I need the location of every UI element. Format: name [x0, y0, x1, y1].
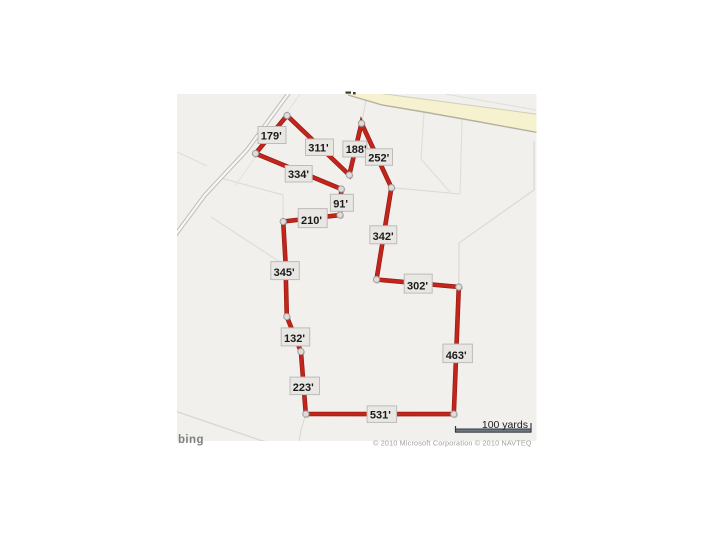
svg-text:223': 223'	[293, 382, 314, 394]
svg-text:334': 334'	[288, 169, 309, 181]
svg-text:463': 463'	[446, 350, 467, 362]
svg-text:179': 179'	[261, 131, 282, 143]
svg-text:91': 91'	[333, 199, 348, 211]
svg-text:342': 342'	[373, 231, 394, 243]
svg-text:531': 531'	[370, 410, 391, 422]
svg-text:132': 132'	[284, 333, 305, 345]
svg-text:302': 302'	[407, 280, 428, 292]
svg-text:bing: bing	[178, 434, 204, 446]
svg-text:100 yards: 100 yards	[482, 419, 528, 431]
svg-text:311': 311'	[308, 143, 329, 155]
svg-text:210': 210'	[301, 215, 322, 227]
svg-text:345': 345'	[274, 267, 295, 279]
svg-text:© 2010 Microsoft Corporation ©: © 2010 Microsoft Corporation © 2010 NAVT…	[373, 438, 532, 447]
svg-text:252': 252'	[368, 153, 389, 165]
svg-text:188': 188'	[346, 144, 367, 156]
